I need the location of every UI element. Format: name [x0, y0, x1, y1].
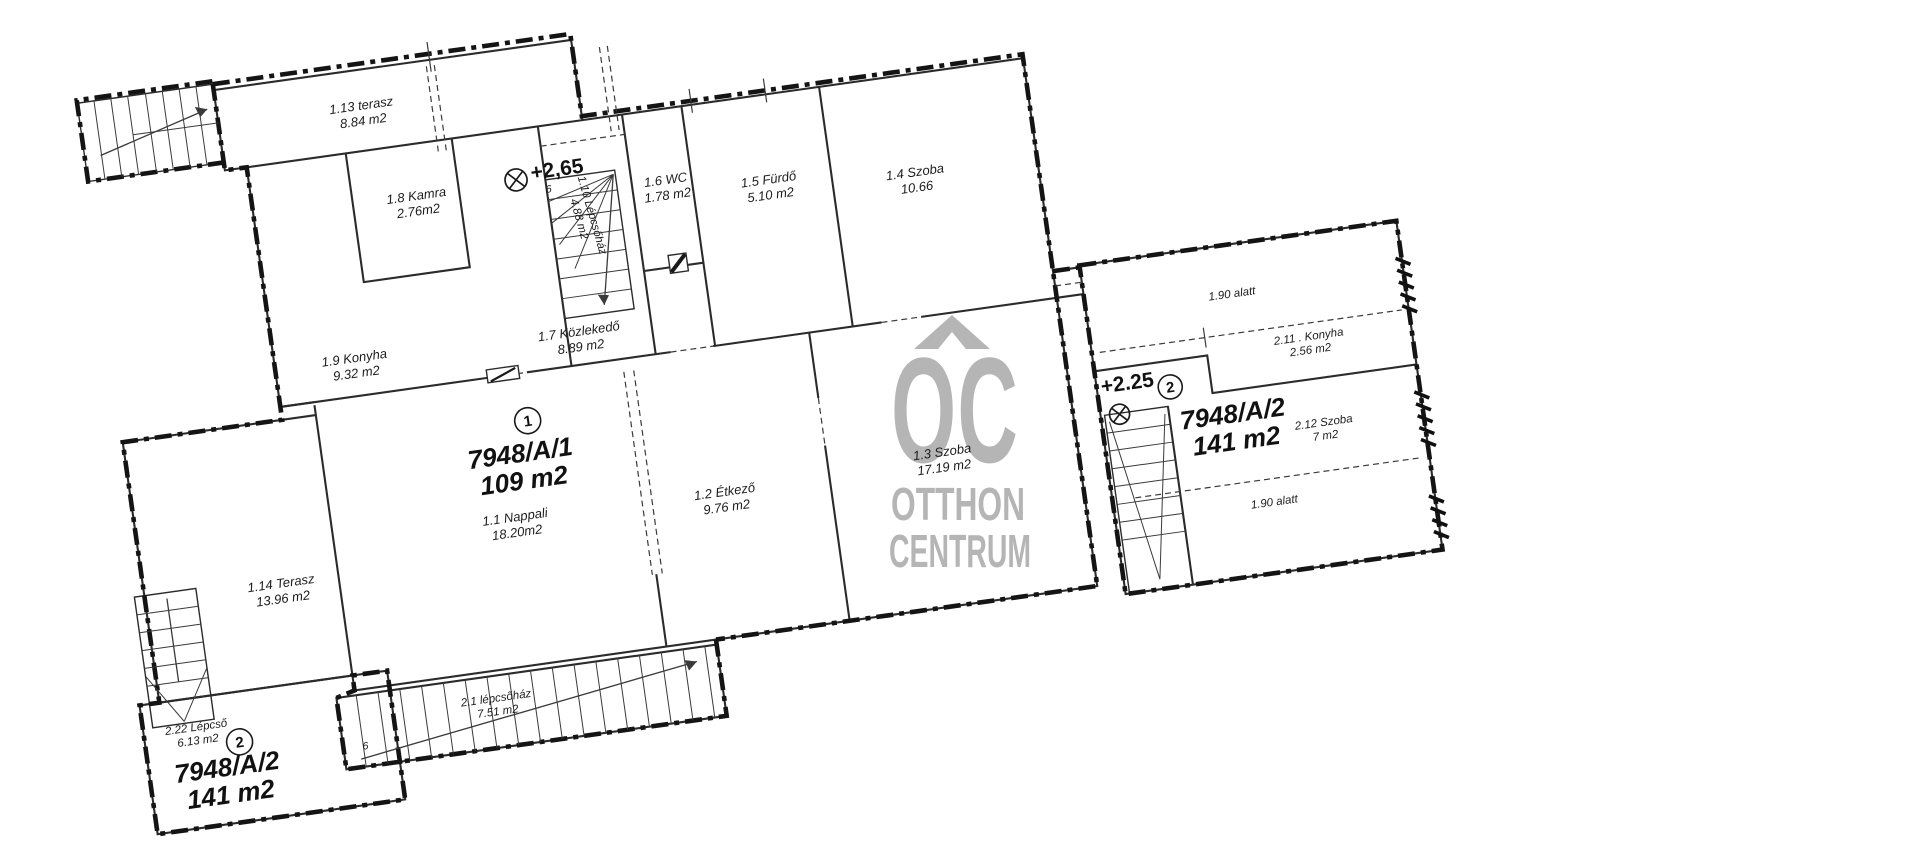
- wall-nappali-etkezo: [656, 574, 666, 646]
- unit-2-badge-right: 2: [1157, 373, 1184, 400]
- dashed-stairwell-top: [528, 45, 625, 146]
- unit-2-parcel-label-bottom: 7948/A/2141 m2: [173, 745, 286, 817]
- unit-1-parcel-label: 7948/A/1109 m2: [466, 431, 579, 503]
- stair-number-note: 6: [362, 740, 370, 753]
- room-label-1-4-szoba: 1.4 Szoba10.66: [885, 160, 947, 198]
- room-label-1-9-konyha: 1.9 Konyha9.32 m2: [321, 346, 390, 385]
- arrowhead-central-stairwell: [598, 293, 610, 305]
- room-label-2-11-konyha: 2.11 . Konyha2.56 m2: [1272, 326, 1346, 361]
- elevation-mark-265: [504, 168, 529, 193]
- level-marker-265-note: 6: [545, 183, 553, 196]
- wall-terrace-114: [123, 415, 353, 703]
- room-label-2-22-lepcso: 2.22 Lépcső6.13 m2: [163, 717, 230, 751]
- room-label-1-6-wc: 1.6 WC1.78 m2: [641, 169, 693, 206]
- wall-kitchen-left: [247, 163, 314, 407]
- level-marker-225: +2.25: [1099, 368, 1155, 398]
- elevation-mark-265-cross: [507, 171, 525, 189]
- arrowhead-top-left-stairs: [195, 105, 208, 118]
- unit-2-parcel-label-right: 7948/A/2141 m2: [1178, 391, 1291, 463]
- unit-1-badge: 1: [513, 406, 542, 435]
- room-label-1-5-furdo: 1.5 Fürdő5.10 m2: [740, 168, 800, 206]
- watermark-otthon-text: OTTHON: [891, 478, 1025, 530]
- room-label-1-14-terasz: 1.14 Terasz13.96 m2: [246, 571, 318, 611]
- floor-plan-svg: OC OTTHON CENTRUM 1.13 terasz8.84 m21.8 …: [0, 0, 1910, 866]
- room-label-2-12-szoba: 2.12 Szoba7 m2: [1293, 413, 1355, 446]
- wall-bottom-stair-strip: [336, 645, 726, 770]
- arrowhead-bottom-strip: [685, 658, 698, 671]
- plan-labels: 1.13 terasz8.84 m21.8 Kamra2.76m21.10 Lé…: [81, 0, 1388, 817]
- dashed-right-unit-upper: [1100, 310, 1402, 352]
- room-label-1-13-terasz: 1.13 terasz8.84 m2: [328, 93, 396, 132]
- room-label-1-8-kamra: 1.8 Kamra2.76m2: [386, 184, 450, 223]
- arrow-left-stairs: [167, 599, 179, 682]
- dashed-nappali-etkezo: [624, 370, 662, 574]
- room-label-1-2-etkezo: 1.2 Étkező9.76 m2: [693, 480, 759, 519]
- wall-right-unit-interior: [1094, 327, 1442, 594]
- wall-etkezo-szoba: [809, 333, 849, 621]
- dashed-etkezo-szoba: [818, 398, 825, 446]
- room-label-1-1-nappali: 1.1 Nappali18.20m2: [481, 505, 551, 545]
- note-190-alatt-top: 1.90 alatt: [1208, 285, 1257, 304]
- treads-right-stairs: [1106, 413, 1192, 583]
- dashed-neck: [1055, 282, 1082, 286]
- watermark-centrum-text: CENTRUM: [889, 525, 1031, 577]
- floor-plan-page: OC OTTHON CENTRUM 1.13 terasz8.84 m21.8 …: [0, 0, 1910, 866]
- room-label-1-7-kozlekedo: 1.7 Közlekedő8.89 m2: [537, 318, 624, 360]
- note-190-alatt-bottom: 1.90 alatt: [1250, 493, 1299, 512]
